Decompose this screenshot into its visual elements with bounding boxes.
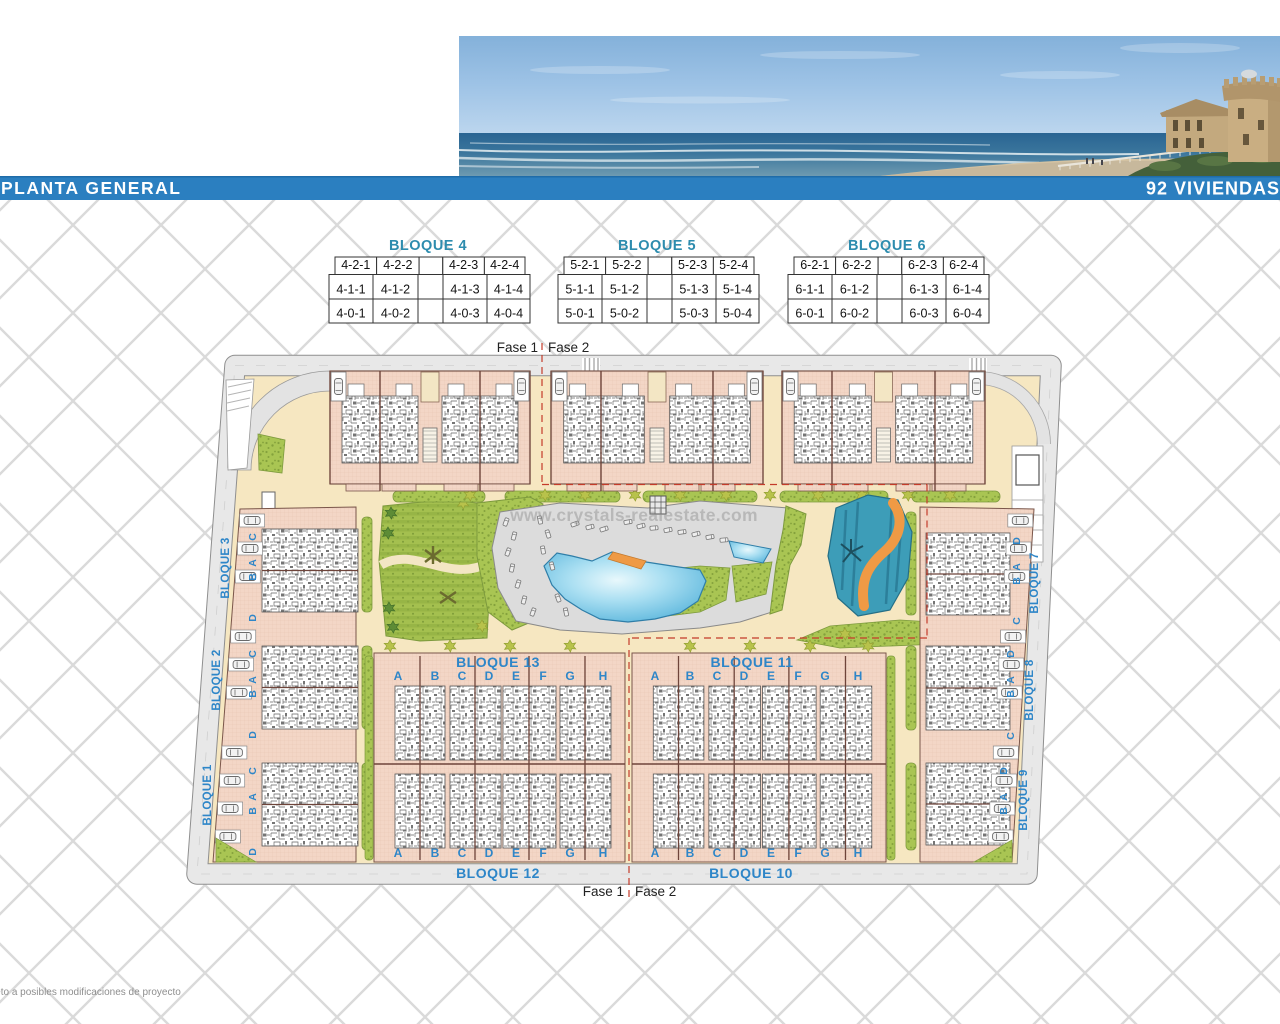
svg-text:5-0-3: 5-0-3 <box>679 307 708 321</box>
svg-text:BLOQUE 5: BLOQUE 5 <box>618 238 696 254</box>
svg-text:6-0-1: 6-0-1 <box>795 307 824 321</box>
svg-text:5-2-1: 5-2-1 <box>570 258 599 272</box>
svg-text:C: C <box>247 650 259 658</box>
svg-text:Fase 2: Fase 2 <box>635 884 676 899</box>
svg-text:BLOQUE 7: BLOQUE 7 <box>1029 552 1041 613</box>
svg-text:4-0-2: 4-0-2 <box>381 307 410 321</box>
svg-text:6-0-4: 6-0-4 <box>953 307 982 321</box>
svg-text:5-0-4: 5-0-4 <box>723 307 752 321</box>
svg-text:BLOQUE 6: BLOQUE 6 <box>848 238 926 254</box>
svg-text:BLOQUE 9: BLOQUE 9 <box>1018 769 1030 830</box>
svg-text:4-1-4: 4-1-4 <box>494 283 523 297</box>
svg-text:4-2-2: 4-2-2 <box>383 258 412 272</box>
svg-text:D: D <box>998 767 1010 775</box>
svg-text:BLOQUE 11: BLOQUE 11 <box>710 654 793 670</box>
svg-text:6-1-2: 6-1-2 <box>840 283 869 297</box>
svg-text:6-2-2: 6-2-2 <box>842 258 871 272</box>
svg-text:B: B <box>1011 577 1023 585</box>
svg-text:Fase 2: Fase 2 <box>548 340 589 355</box>
svg-text:4-0-1: 4-0-1 <box>336 307 365 321</box>
svg-text:B: B <box>247 807 259 815</box>
svg-text:BLOQUE 8: BLOQUE 8 <box>1024 659 1036 720</box>
svg-text:5-0-1: 5-0-1 <box>565 307 594 321</box>
svg-text:6-1-1: 6-1-1 <box>795 283 824 297</box>
svg-text:H: H <box>854 846 863 860</box>
svg-text:5-0-2: 5-0-2 <box>610 307 639 321</box>
svg-text:PLANTA GENERAL: PLANTA GENERAL <box>1 178 181 198</box>
svg-text:D: D <box>485 846 494 860</box>
svg-text:G: G <box>565 669 574 683</box>
svg-text:5-2-2: 5-2-2 <box>612 258 641 272</box>
svg-text:A: A <box>1011 563 1023 571</box>
svg-text:H: H <box>599 846 608 860</box>
svg-text:C: C <box>247 767 259 775</box>
svg-text:B: B <box>247 573 259 581</box>
svg-text:BLOQUE 10: BLOQUE 10 <box>709 865 793 881</box>
svg-text:BLOQUE 12: BLOQUE 12 <box>456 865 540 881</box>
svg-text:6-1-3: 6-1-3 <box>909 283 938 297</box>
svg-text:B: B <box>1005 690 1017 698</box>
svg-text:A: A <box>1005 676 1017 684</box>
svg-text:F: F <box>539 846 546 860</box>
svg-text:BLOQUE 2: BLOQUE 2 <box>211 649 223 710</box>
svg-text:6-2-3: 6-2-3 <box>908 258 937 272</box>
svg-text:F: F <box>794 846 801 860</box>
svg-text:A: A <box>247 793 259 801</box>
svg-text:BLOQUE 13: BLOQUE 13 <box>456 654 540 670</box>
svg-text:D: D <box>247 731 259 739</box>
svg-text:5-1-3: 5-1-3 <box>679 283 708 297</box>
svg-text:A: A <box>651 669 660 683</box>
svg-text:4-0-4: 4-0-4 <box>494 307 523 321</box>
svg-text:E: E <box>767 669 775 683</box>
svg-text:G: G <box>820 846 829 860</box>
svg-text:A: A <box>998 793 1010 801</box>
svg-text:4-0-3: 4-0-3 <box>450 307 479 321</box>
svg-text:A: A <box>247 676 259 684</box>
svg-text:F: F <box>539 669 546 683</box>
svg-text:Plano sujeto a posibles modifi: Plano sujeto a posibles modificaciones d… <box>0 987 181 998</box>
svg-text:Fase 1: Fase 1 <box>497 340 538 355</box>
svg-text:4-2-4: 4-2-4 <box>490 258 519 272</box>
svg-text:D: D <box>740 846 749 860</box>
svg-text:E: E <box>512 669 520 683</box>
svg-text:B: B <box>686 846 695 860</box>
svg-text:D: D <box>740 669 749 683</box>
svg-text:D: D <box>1011 537 1023 545</box>
svg-text:B: B <box>431 846 440 860</box>
svg-text:4-1-3: 4-1-3 <box>450 283 479 297</box>
svg-text:A: A <box>394 846 403 860</box>
svg-text:B: B <box>247 690 259 698</box>
svg-text:G: G <box>820 669 829 683</box>
svg-text:C: C <box>1005 732 1017 740</box>
svg-text:H: H <box>599 669 608 683</box>
svg-text:B: B <box>431 669 440 683</box>
svg-text:A: A <box>247 559 259 567</box>
svg-text:www.crystals-realestate.com: www.crystals-realestate.com <box>509 505 758 525</box>
svg-text:4-2-1: 4-2-1 <box>341 258 370 272</box>
svg-text:D: D <box>247 848 259 856</box>
svg-text:4-1-1: 4-1-1 <box>336 283 365 297</box>
svg-text:BLOQUE 4: BLOQUE 4 <box>389 238 467 254</box>
svg-text:C: C <box>247 533 259 541</box>
svg-text:G: G <box>565 846 574 860</box>
svg-text:C: C <box>1011 617 1023 625</box>
svg-text:6-0-2: 6-0-2 <box>840 307 869 321</box>
svg-text:6-2-1: 6-2-1 <box>800 258 829 272</box>
svg-text:BLOQUE 3: BLOQUE 3 <box>220 537 232 598</box>
svg-text:5-1-2: 5-1-2 <box>610 283 639 297</box>
svg-text:C: C <box>713 669 722 683</box>
svg-text:5-1-4: 5-1-4 <box>723 283 752 297</box>
svg-text:H: H <box>854 669 863 683</box>
svg-text:4-1-2: 4-1-2 <box>381 283 410 297</box>
svg-text:BLOQUE 1: BLOQUE 1 <box>202 764 214 825</box>
svg-text:C: C <box>458 669 467 683</box>
svg-text:E: E <box>512 846 520 860</box>
svg-text:5-1-1: 5-1-1 <box>565 283 594 297</box>
svg-text:5-2-4: 5-2-4 <box>719 258 748 272</box>
svg-text:D: D <box>247 614 259 622</box>
svg-text:B: B <box>686 669 695 683</box>
svg-text:6-2-4: 6-2-4 <box>949 258 978 272</box>
svg-text:A: A <box>651 846 660 860</box>
svg-text:6-0-3: 6-0-3 <box>909 307 938 321</box>
svg-text:4-2-3: 4-2-3 <box>449 258 478 272</box>
svg-text:A: A <box>394 669 403 683</box>
svg-text:6-1-4: 6-1-4 <box>953 283 982 297</box>
svg-text:5-2-3: 5-2-3 <box>678 258 707 272</box>
svg-text:F: F <box>794 669 801 683</box>
svg-text:Fase 1: Fase 1 <box>583 884 624 899</box>
svg-text:D: D <box>1005 650 1017 658</box>
svg-text:B: B <box>998 807 1010 815</box>
svg-text:E: E <box>767 846 775 860</box>
svg-text:D: D <box>485 669 494 683</box>
svg-text:C: C <box>458 846 467 860</box>
svg-text:C: C <box>713 846 722 860</box>
svg-text:92 VIVIENDAS: 92 VIVIENDAS <box>1146 179 1280 199</box>
